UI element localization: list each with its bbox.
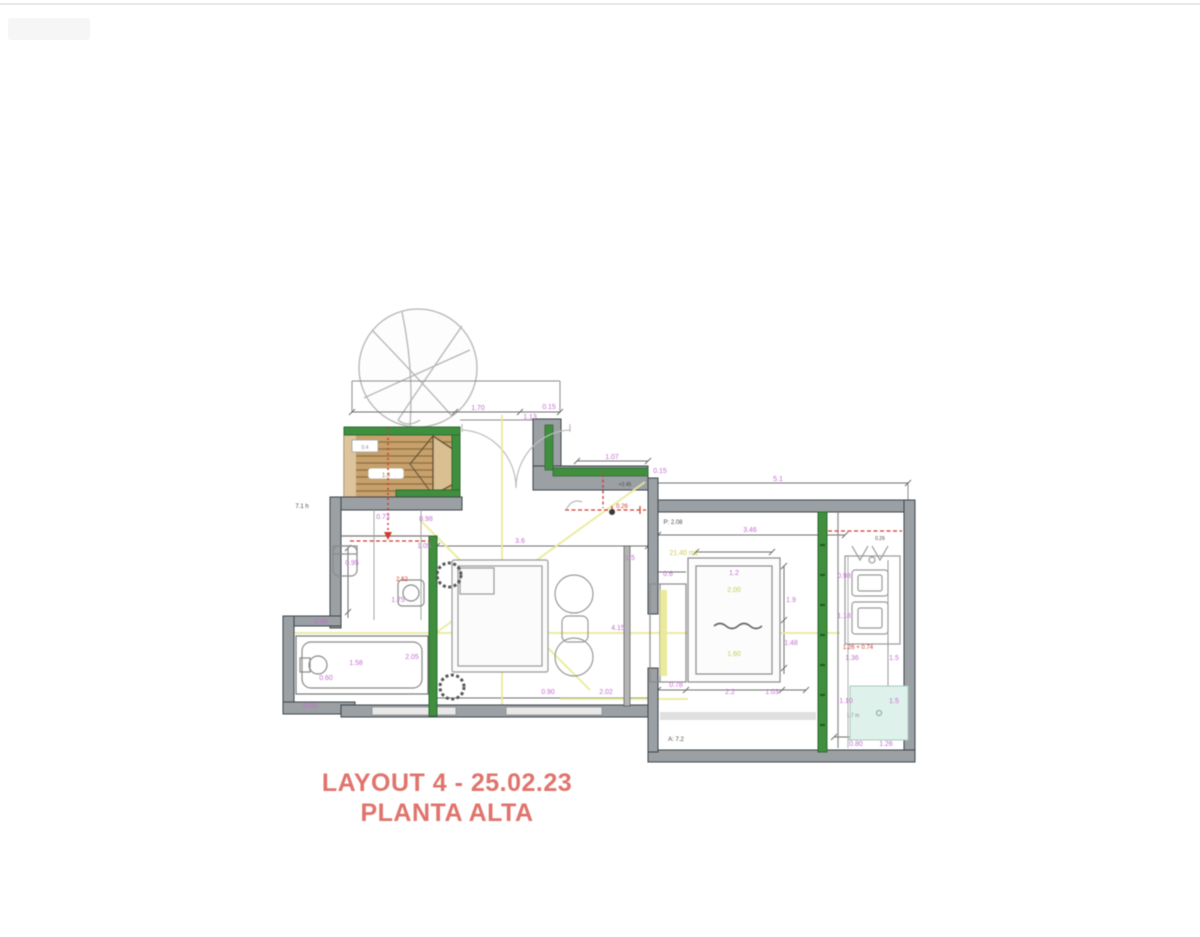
dimension-label: 0.95 — [345, 560, 359, 567]
deck-green-wall-top — [344, 427, 460, 435]
dimension-label: 0.26 — [616, 504, 628, 510]
bed-left-room — [452, 560, 548, 672]
dimension-label: 0.60 — [319, 675, 333, 682]
dimension-label: 0.4 — [362, 445, 369, 451]
dimension-label: 0.26 — [875, 536, 885, 542]
dimension-label: 2.05 — [405, 654, 419, 661]
dimension-label: 1.03 — [765, 689, 779, 696]
plan-title-line2: PLANTA ALTA — [297, 798, 597, 828]
dimension-label: 1.05 — [417, 543, 431, 550]
floor-plan-drawing: 1.701.130.151.075.10.153.46P: 2.08+2.451… — [0, 0, 1200, 937]
dimension-label: 0.80 — [849, 741, 863, 748]
dimension-label: 21.40 m2 — [669, 550, 698, 557]
green-wall-step-vertical — [545, 425, 553, 470]
deck-green-wall-bottom — [396, 490, 460, 497]
dimension-label: 1.10 — [839, 698, 853, 705]
dimension-label: 4.15 — [611, 625, 625, 632]
dimension-label: 0.15 — [542, 404, 556, 411]
dimension-label: 3.6 — [515, 538, 525, 545]
dimension-label: 0.98 — [419, 516, 433, 523]
dimension-label: P: 2.08 — [663, 520, 683, 526]
partition-wall — [624, 546, 630, 706]
dimension-label: 1.5 — [889, 698, 899, 705]
left-room-furniture — [437, 560, 593, 699]
dimension-label: 2.02 — [599, 689, 613, 696]
dimension-label: 1.36 — [845, 655, 859, 662]
rug-band — [660, 712, 816, 720]
dimension-label: 1.26 + 0.74 — [843, 645, 874, 651]
dimension-label: 1.7 m — [847, 713, 860, 719]
window-bottom-center — [506, 707, 602, 715]
deck-green-wall-right — [452, 435, 460, 497]
dimension-label: 2.62 — [396, 577, 408, 583]
dimension-label: 1.5 — [889, 655, 899, 662]
plan-title-line1: LAYOUT 4 - 25.02.23 — [297, 768, 597, 798]
floor-plan-page: 1.701.130.151.075.10.153.46P: 2.08+2.451… — [0, 0, 1200, 937]
wardrobe-highlight — [660, 590, 667, 676]
dimension-label: 0.15 — [653, 468, 667, 475]
dimension-label: 5.1 — [773, 476, 783, 483]
dimension-label: 0.73 — [376, 514, 390, 521]
dimension-label: 1.70 — [471, 405, 485, 412]
dimension-label: 1.8 — [382, 473, 391, 479]
dimension-label: 1.9 — [786, 597, 796, 604]
dimension-label: +2.45 — [619, 482, 632, 488]
dimension-label: 1.58 — [349, 660, 363, 667]
stepped-wall — [533, 419, 648, 490]
window-bottom-left — [372, 707, 456, 715]
wood-deck — [344, 427, 460, 497]
dimension-label: 1.13 — [523, 414, 537, 421]
dimension-label: 1.18 — [837, 613, 851, 620]
door-swing-small — [566, 501, 582, 510]
dimension-label: A: 7.2 — [668, 737, 684, 743]
dimension-label: 0.90 — [541, 689, 555, 696]
dimension-label: 1.48 — [784, 640, 798, 647]
green-wall-left-wing — [429, 536, 437, 716]
dimension-label: 1.5 — [625, 555, 635, 562]
dimension-label: 7.1 h — [295, 504, 308, 510]
dimension-label: 2.2 — [725, 689, 735, 696]
dimension-label: 0.98 — [837, 573, 851, 580]
green-wall-right-wing — [818, 512, 827, 752]
dimension-label: 1.75 — [391, 597, 405, 604]
dimension-label: 0.60 — [303, 703, 317, 710]
title-block: LAYOUT 4 - 25.02.23 PLANTA ALTA — [297, 768, 597, 828]
green-wall-step-horizontal — [553, 468, 648, 476]
chair-bottom — [555, 638, 593, 676]
dimension-label: 0.98 — [314, 619, 328, 626]
dimension-label: 1.26 — [879, 741, 893, 748]
chair-top — [555, 575, 593, 613]
dimension-label: 2.00 — [727, 587, 741, 594]
dimension-label: 1.07 — [605, 454, 619, 461]
dimension-label: 1.60 — [727, 651, 741, 658]
dimension-label: 0.78 — [669, 682, 683, 689]
tree-canopy — [359, 309, 477, 427]
dimension-label: 3.46 — [743, 527, 757, 534]
dimension-label: 0.6 — [663, 571, 673, 578]
stool-bottom — [440, 675, 464, 699]
dimension-label: 1.2 — [729, 570, 739, 577]
